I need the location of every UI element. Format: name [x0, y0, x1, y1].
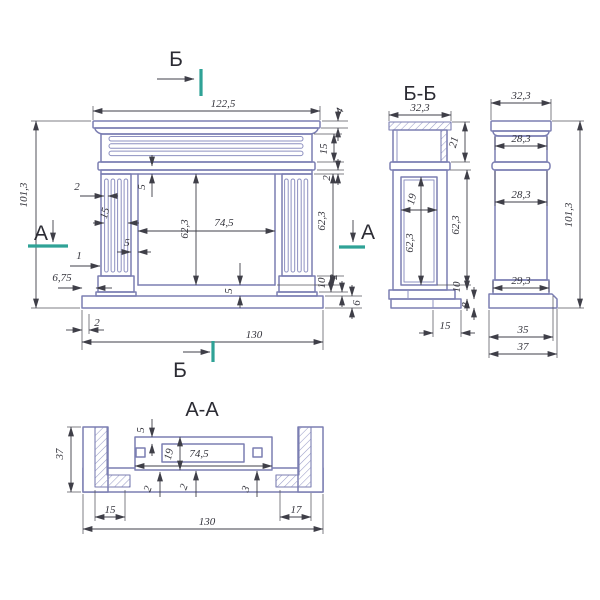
side-base-plate — [489, 294, 557, 308]
right-pilaster-base — [279, 276, 315, 292]
dim-aa-depth37: 37 — [54, 448, 66, 461]
mantel-shelf — [93, 121, 320, 128]
bb-dim-labels: 32,3 21 19 62,3 62,3 10 8 15 — [404, 102, 472, 332]
bb-plinth — [389, 290, 455, 299]
architrave-strip — [101, 170, 312, 174]
dim-front-crown: 4 — [334, 106, 347, 116]
section-bb-view: Б-Б — [389, 83, 475, 337]
fireplace-technical-drawing: 122,5 101,3 4 15 2 5 2 15 5 1 6,75 62,3 … — [0, 0, 600, 600]
dim-front-band: 2 — [321, 175, 333, 181]
bb-band — [390, 162, 450, 170]
bb-geometry — [389, 122, 461, 308]
dim-aa-panel: 5 — [135, 427, 147, 433]
dim-front-offset: 6,75 — [52, 272, 72, 284]
dim-front-frieze: 15 — [318, 143, 330, 155]
dim-front-flute: 2 — [74, 181, 80, 193]
dim-front-flutes: 15 — [98, 206, 113, 220]
dim-side-base-top: 29,3 — [511, 275, 531, 287]
sub-band — [98, 162, 315, 170]
pilaster-flutes — [105, 179, 308, 272]
dim-front-plinth: 10 — [316, 277, 328, 289]
left-pilaster — [101, 174, 131, 276]
dim-bb-plinth: 10 — [451, 281, 463, 293]
base-plate — [82, 296, 323, 308]
dim-side-pillar: 28,3 — [511, 189, 531, 201]
dim-bb-foot-width: 15 — [440, 320, 452, 332]
frieze-groove — [109, 151, 303, 156]
dim-front-opening-width: 74,5 — [214, 217, 234, 229]
dim-front-width-base: 130 — [246, 329, 263, 341]
dim-front-foot: 2 — [328, 274, 340, 280]
side-shelf — [491, 121, 551, 131]
side-pillar — [495, 170, 547, 280]
frieze-groove — [109, 137, 303, 142]
dim-side-base37: 37 — [517, 341, 530, 353]
dim-front-edge: 2 — [94, 317, 100, 329]
crown-cove — [95, 128, 318, 134]
dim-front-opening-height: 62,3 — [179, 219, 191, 239]
dim-bb-cavity-width: 19 — [405, 192, 420, 206]
dim-bb-top-height: 21 — [447, 135, 461, 149]
dim-bb-cavity-height: 62,3 — [404, 233, 416, 253]
dim-aa-leg-left: 15 — [105, 504, 117, 516]
dim-front-reveal: 1 — [76, 250, 82, 262]
section-label-b-bottom: Б — [173, 359, 187, 382]
front-geometry — [82, 121, 323, 308]
bb-shelf-cut — [389, 122, 451, 130]
dim-bb-base: 8 — [460, 302, 472, 308]
aa-left-pilaster-cut — [95, 427, 130, 487]
left-pilaster-base — [98, 276, 134, 292]
section-aa-title: А-А — [185, 399, 219, 421]
bb-cavity — [401, 177, 437, 285]
dim-aa-width: 130 — [199, 516, 216, 528]
section-aa-view: А-А — [54, 399, 323, 534]
bb-base — [391, 299, 461, 308]
side-dim-labels: 32,3 28,3 28,3 101,3 29,3 35 37 — [510, 90, 575, 353]
side-dimensions — [489, 99, 584, 358]
section-label-a-right: А — [361, 221, 375, 244]
dim-front-lintel: 5 — [136, 184, 148, 190]
side-band — [492, 162, 550, 170]
aa-right-pilaster-cut — [276, 427, 311, 487]
side-view: 32,3 28,3 28,3 101,3 29,3 35 37 — [489, 90, 584, 358]
dim-side-height: 101,3 — [563, 202, 575, 227]
dim-side-neck: 28,3 — [511, 133, 531, 145]
dim-front-right-height: 62,3 — [316, 211, 328, 231]
front-view: 122,5 101,3 4 15 2 5 2 15 5 1 6,75 62,3 … — [18, 98, 363, 350]
section-label-a-left: А — [34, 222, 48, 245]
dim-bb-width: 32,3 — [409, 102, 430, 114]
bb-frieze — [393, 130, 447, 162]
dim-front-jamb: 5 — [124, 237, 130, 249]
frieze-groove — [109, 144, 303, 149]
section-label-b-top: Б — [169, 48, 183, 71]
dim-front-height: 101,3 — [18, 182, 30, 207]
dim-front-width-top: 122,5 — [211, 98, 236, 110]
dim-bb-side-height: 62,3 — [450, 215, 462, 235]
dim-aa-leg-right: 17 — [291, 504, 303, 516]
dim-front-base-height: 6 — [351, 300, 363, 306]
dim-side-width-top: 32,3 — [510, 90, 531, 102]
dim-aa-opening: 74,5 — [189, 448, 209, 460]
dim-front-sill: 5 — [223, 288, 235, 294]
dim-side-base35: 35 — [517, 324, 530, 336]
